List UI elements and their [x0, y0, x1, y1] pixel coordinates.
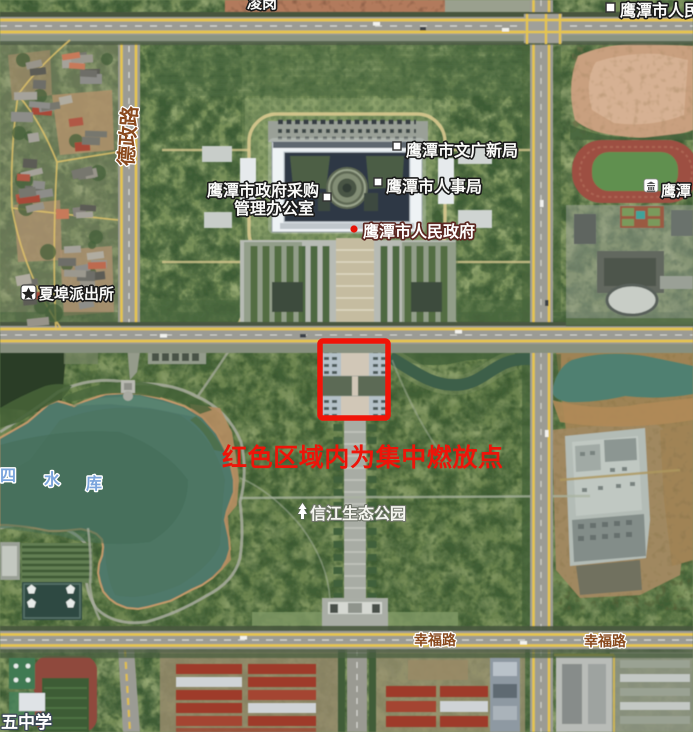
- svg-text:夏埠派出所: 夏埠派出所: [38, 285, 114, 303]
- svg-text:库: 库: [86, 474, 102, 493]
- svg-text:鹰潭市文广新局: 鹰潭市文广新局: [406, 141, 518, 160]
- svg-text:幸福路: 幸福路: [584, 633, 627, 649]
- svg-text:五中学: 五中学: [1, 712, 52, 732]
- svg-text:鹰潭市人民: 鹰潭市人民: [620, 1, 693, 20]
- svg-text:凌岗: 凌岗: [247, 0, 277, 12]
- svg-text:信江生态公园: 信江生态公园: [310, 504, 406, 523]
- svg-text:鹰潭市人事局: 鹰潭市人事局: [386, 177, 482, 196]
- svg-text:红色区域内为集中燃放点: 红色区域内为集中燃放点: [222, 443, 504, 472]
- svg-text:鹰潭市人民政府: 鹰潭市人民政府: [363, 222, 475, 241]
- svg-text:管理办公室: 管理办公室: [234, 199, 314, 218]
- svg-text:四: 四: [0, 468, 16, 485]
- svg-text:幸福路: 幸福路: [414, 632, 457, 648]
- svg-text:鹰潭: 鹰潭: [661, 182, 691, 200]
- svg-text:鹰潭市政府采购: 鹰潭市政府采购: [207, 181, 319, 200]
- svg-text:水: 水: [44, 470, 61, 489]
